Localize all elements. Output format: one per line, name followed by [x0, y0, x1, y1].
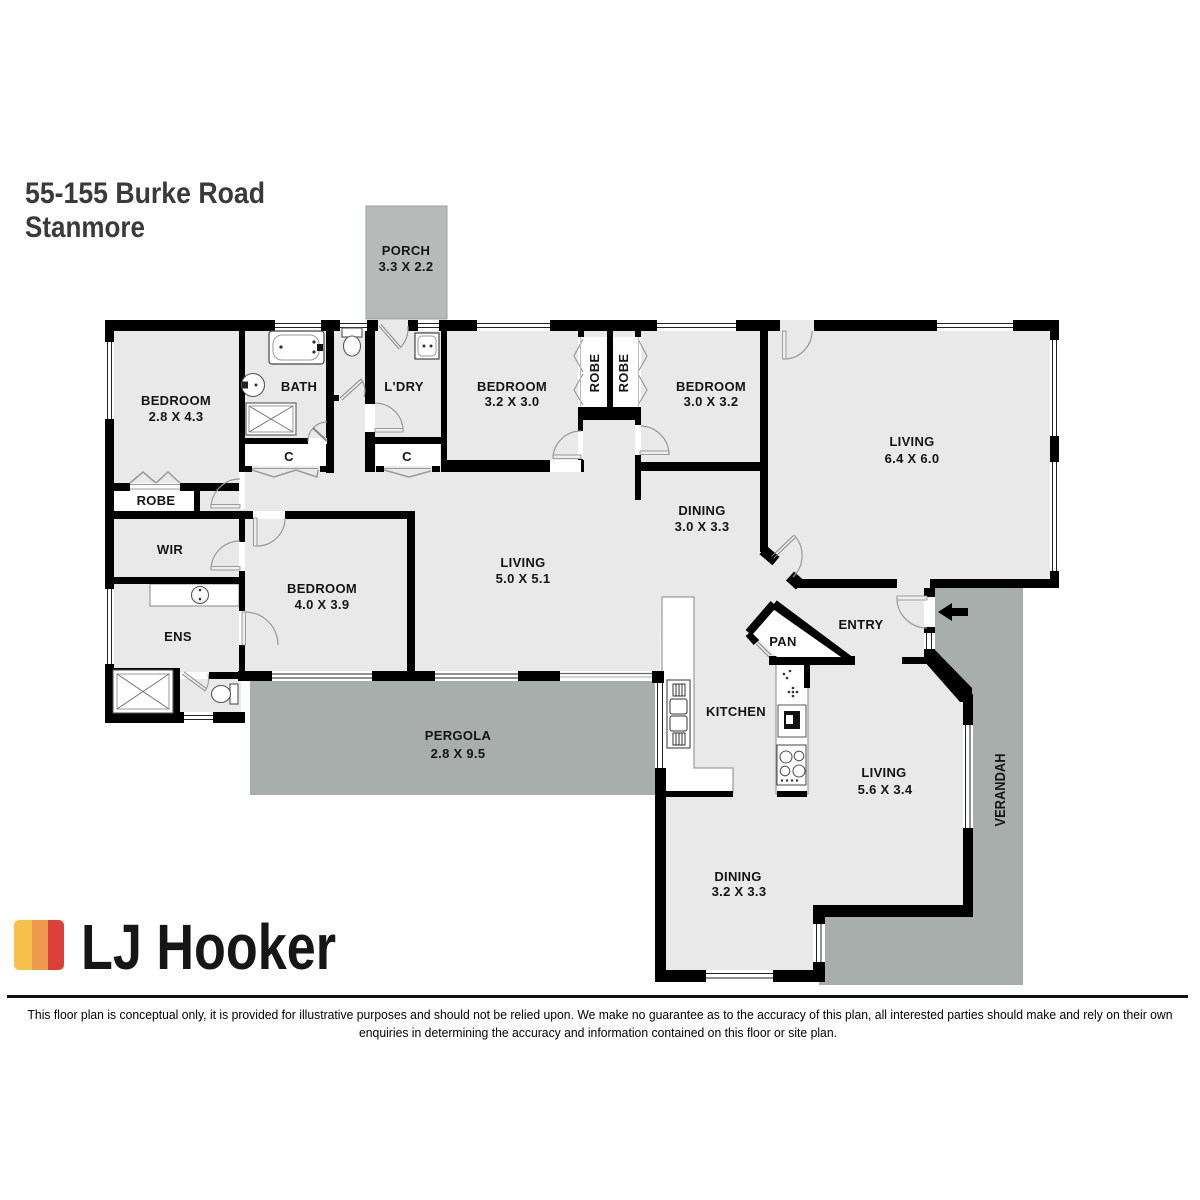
svg-text:enquiries in determining the a: enquiries in determining the accuracy an…: [359, 1025, 837, 1040]
svg-text:PERGOLA: PERGOLA: [425, 728, 492, 743]
svg-text:BEDROOM: BEDROOM: [141, 393, 211, 408]
svg-text:5.0 X 5.1: 5.0 X 5.1: [496, 571, 551, 586]
svg-text:KITCHEN: KITCHEN: [706, 704, 766, 719]
svg-text:DINING: DINING: [714, 869, 761, 884]
svg-text:C: C: [284, 449, 294, 464]
svg-text:ROBE: ROBE: [587, 354, 602, 393]
svg-text:LJ Hooker: LJ Hooker: [81, 911, 336, 983]
svg-text:BEDROOM: BEDROOM: [477, 379, 547, 394]
svg-text:2.8 X 9.5: 2.8 X 9.5: [431, 746, 486, 761]
svg-text:3.0 X 3.3: 3.0 X 3.3: [675, 519, 730, 534]
svg-text:Stanmore: Stanmore: [25, 211, 145, 244]
svg-text:3.2 X 3.0: 3.2 X 3.0: [485, 394, 540, 409]
svg-text:LIVING: LIVING: [500, 555, 545, 570]
svg-text:ENS: ENS: [164, 629, 192, 644]
svg-text:BATH: BATH: [281, 379, 317, 394]
svg-text:PAN: PAN: [769, 634, 796, 649]
svg-text:This floor plan is conceptual: This floor plan is conceptual only, it i…: [28, 1007, 1173, 1022]
svg-text:WIR: WIR: [157, 542, 183, 557]
svg-text:BEDROOM: BEDROOM: [676, 379, 746, 394]
svg-text:3.3 X 2.2: 3.3 X 2.2: [379, 259, 434, 274]
svg-text:5.6 X 3.4: 5.6 X 3.4: [858, 782, 913, 797]
svg-text:6.4 X 6.0: 6.4 X 6.0: [885, 451, 940, 466]
svg-text:PORCH: PORCH: [382, 243, 430, 258]
svg-text:L'DRY: L'DRY: [384, 379, 424, 394]
svg-text:LIVING: LIVING: [889, 434, 934, 449]
svg-text:ROBE: ROBE: [137, 493, 176, 508]
svg-text:ROBE: ROBE: [616, 354, 631, 393]
svg-text:3.2 X 3.3: 3.2 X 3.3: [712, 884, 767, 899]
svg-text:2.8 X 4.3: 2.8 X 4.3: [149, 409, 204, 424]
svg-text:VERANDAH: VERANDAH: [992, 754, 1009, 827]
svg-text:DINING: DINING: [678, 503, 725, 518]
svg-text:C: C: [402, 449, 412, 464]
svg-text:55-155 Burke Road: 55-155 Burke Road: [25, 177, 265, 210]
svg-text:4.0 X 3.9: 4.0 X 3.9: [295, 597, 350, 612]
svg-text:BEDROOM: BEDROOM: [287, 581, 357, 596]
svg-text:ENTRY: ENTRY: [838, 617, 883, 632]
svg-text:3.0 X 3.2: 3.0 X 3.2: [684, 394, 739, 409]
svg-text:LIVING: LIVING: [861, 765, 906, 780]
